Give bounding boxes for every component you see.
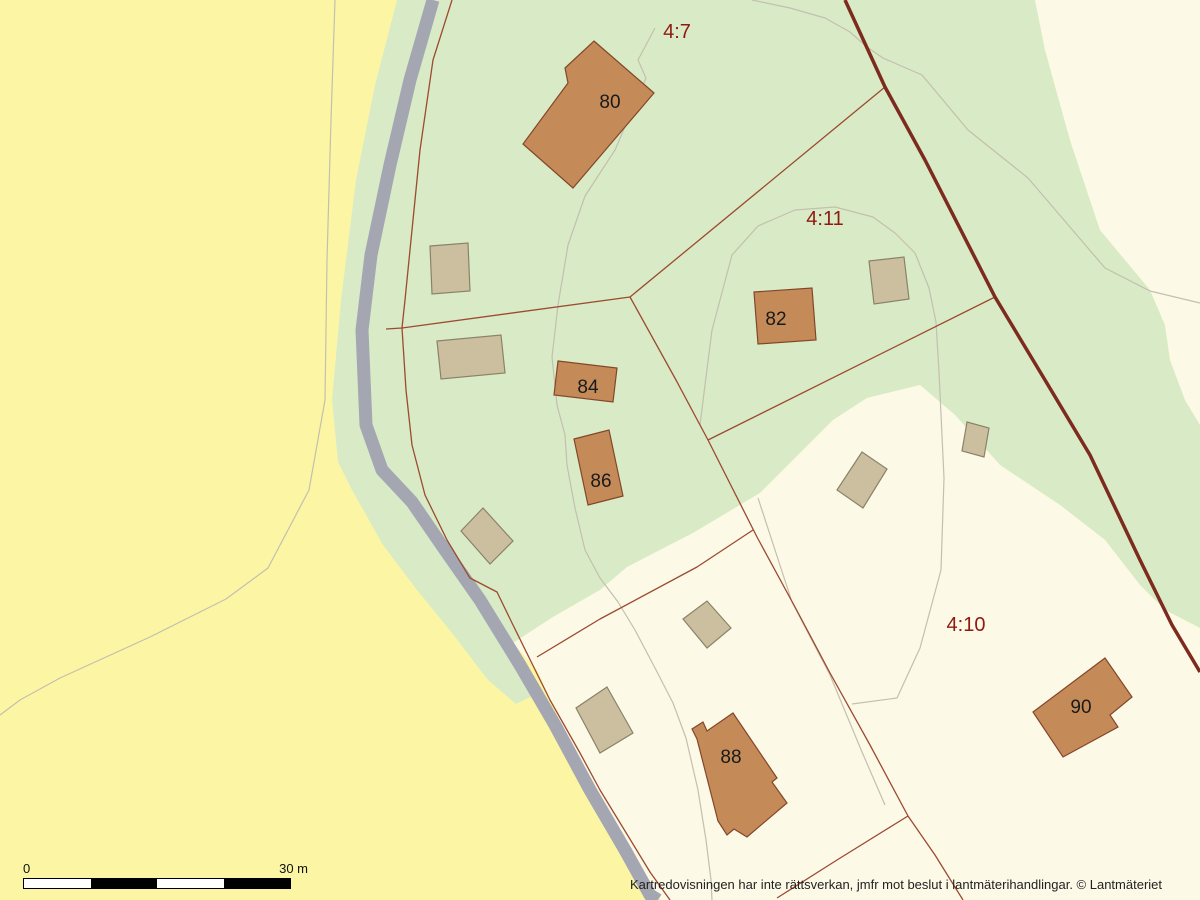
building-number-label: 80 (599, 92, 620, 113)
building-number-label: 90 (1070, 697, 1091, 718)
scale-start-label: 0 (23, 861, 30, 876)
outbuilding (437, 335, 505, 379)
scale-bar-segment (157, 879, 224, 888)
scale-bar-strip (23, 878, 291, 889)
parcel-label: 4:7 (663, 21, 691, 43)
outbuilding (430, 243, 470, 294)
building-number-label: 84 (577, 377, 599, 398)
parcel-label: 4:11 (806, 208, 843, 230)
cadastral-map: 8082848688904:74:114:10 (0, 0, 1200, 900)
parcel-label: 4:10 (947, 614, 986, 636)
outbuilding (869, 257, 909, 304)
building-number-label: 86 (590, 471, 611, 492)
outbuilding (962, 422, 989, 457)
building-number-label: 88 (720, 747, 741, 768)
scale-bar-segment (24, 879, 91, 888)
building-number-label: 82 (765, 309, 786, 330)
scale-bar-segment (91, 879, 158, 888)
scale-bar-segment (224, 879, 291, 888)
scale-bar: 0 30 m (23, 861, 291, 889)
map-disclaimer: Kartredovisningen har inte rättsverkan, … (630, 877, 1162, 892)
scale-bar-labels: 0 30 m (23, 861, 291, 876)
scale-end-label: 30 m (279, 861, 308, 876)
map-canvas[interactable]: 8082848688904:74:114:10 0 30 m Kartredov… (0, 0, 1200, 900)
